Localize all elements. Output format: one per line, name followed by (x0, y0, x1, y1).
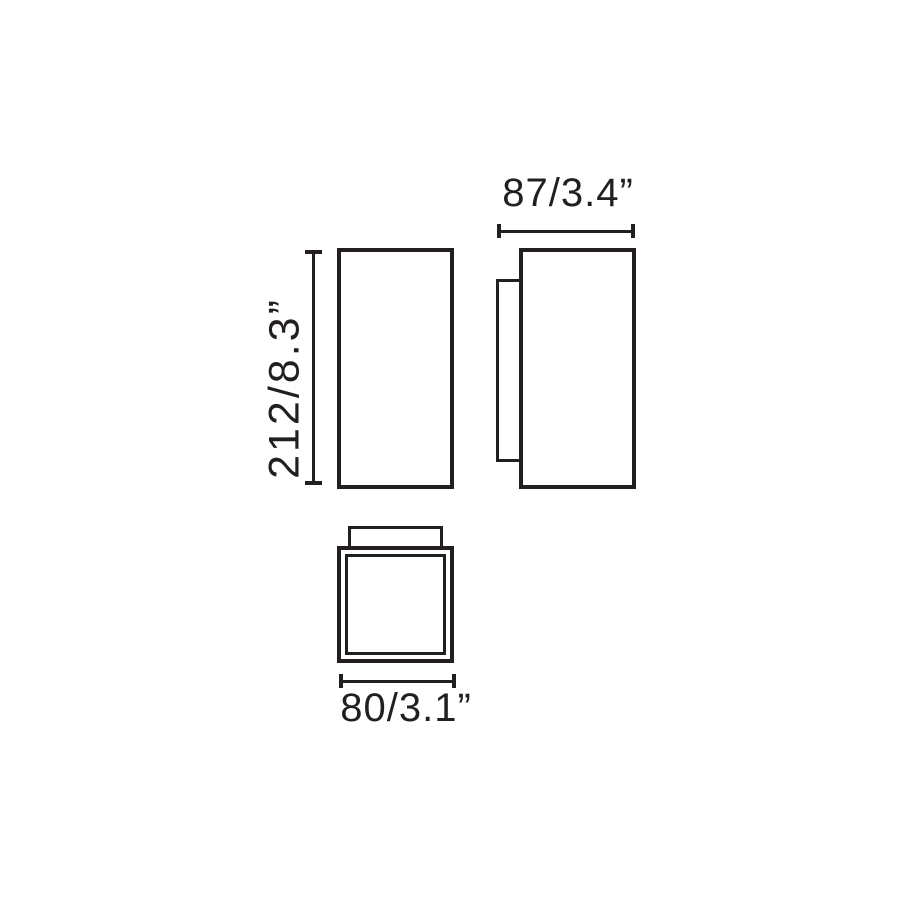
dimension-line-stroke (339, 680, 456, 683)
front-view-outline (337, 248, 454, 489)
height-dimension-label: 212/8.3” (264, 297, 307, 479)
dimension-line-stroke (497, 230, 635, 233)
side-view-body-outline (519, 248, 636, 489)
bottom-view-inner-outline (345, 554, 446, 655)
dimension-diagram: 212/8.3” 87/3.4” 80/3.1” (0, 0, 900, 900)
depth-dimension-label: 87/3.4” (502, 173, 634, 213)
depth-dimension-line (497, 224, 635, 238)
dimension-line-stroke (312, 250, 315, 485)
width-dimension-label: 80/3.1” (340, 688, 472, 728)
